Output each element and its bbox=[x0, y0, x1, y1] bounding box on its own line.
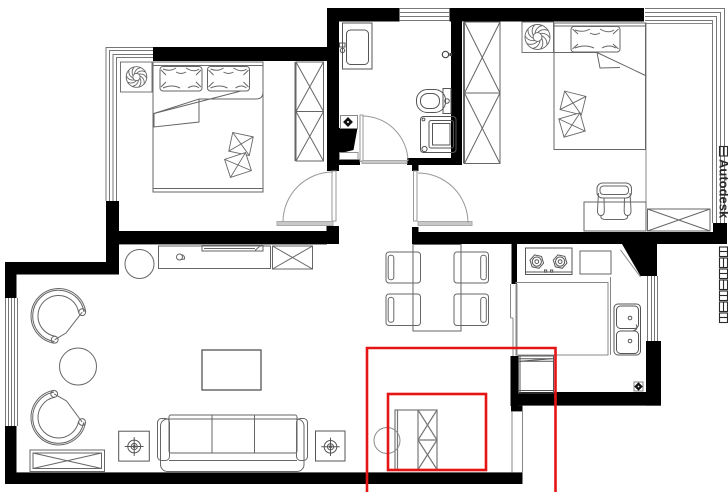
svg-text:Autodesk: Autodesk bbox=[717, 159, 728, 219]
